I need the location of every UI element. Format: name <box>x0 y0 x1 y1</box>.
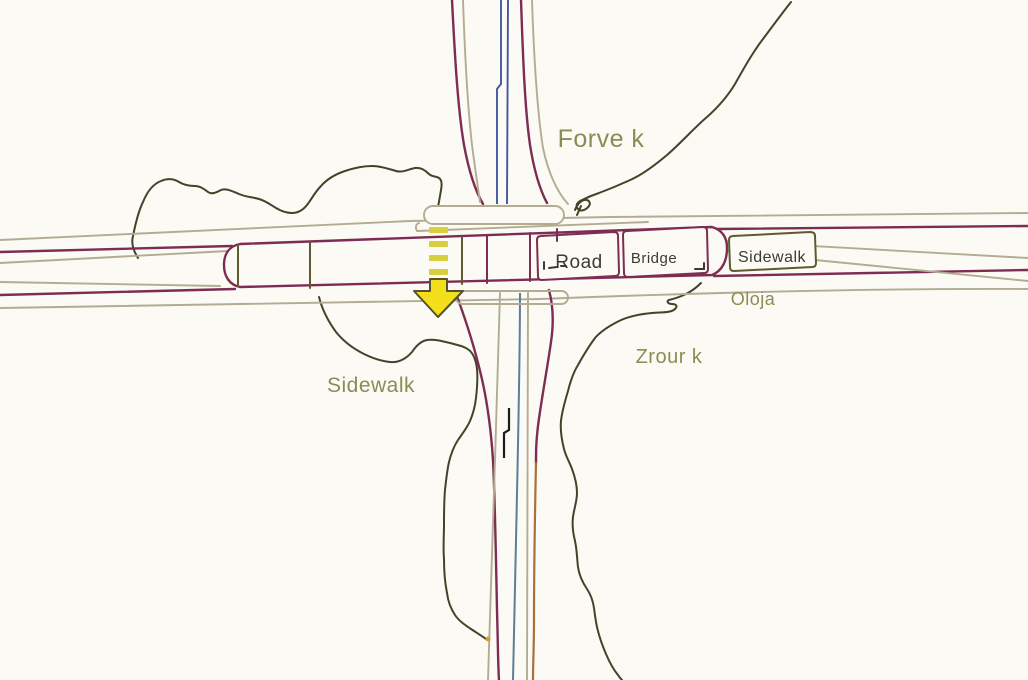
vertical-road <box>452 0 568 680</box>
stream-teal-bottom <box>513 293 520 680</box>
map-canvas: Forve k Road Bridge Sidewalk Oloja Zrour… <box>0 0 1028 680</box>
arrow-dash-1 <box>429 227 448 233</box>
road-edge-lower-left-1 <box>0 282 220 286</box>
arrow-dash-4 <box>429 269 448 275</box>
label-bridge: Bridge <box>631 250 677 267</box>
road-edge-upper-left-2 <box>0 251 228 263</box>
contour-lines <box>132 2 791 680</box>
label-forve-k: Forve k <box>558 125 645 153</box>
survey-dot <box>486 637 491 642</box>
label-sidewalk-right: Sidewalk <box>738 249 807 266</box>
arrow-dash-2 <box>429 241 448 247</box>
vroad-edge-top-right <box>532 0 568 204</box>
label-sidewalk-left: Sidewalk <box>327 374 415 397</box>
vroad-edge-bottom-right <box>527 293 528 680</box>
contour-upper-right <box>575 2 791 215</box>
road-casing-lower-left <box>0 289 235 295</box>
label-road: Road <box>555 252 602 273</box>
vroad-edge-top-left <box>463 0 480 202</box>
road-casing-upper-left <box>0 246 232 252</box>
path-brown-bottom <box>533 462 536 680</box>
gps-trace-jog <box>504 408 509 458</box>
label-zrour-k: Zrour k <box>636 346 703 368</box>
road-casing-upper-right <box>717 226 1028 229</box>
vroad-casing-bottom-right <box>536 290 553 464</box>
contour-lower-left <box>319 297 486 639</box>
stream-blue-1 <box>497 0 501 204</box>
arrow-head <box>414 279 463 317</box>
arrow-dash-3 <box>429 255 448 261</box>
contour-lower-right <box>561 283 701 680</box>
map-drawing: Forve k Road Bridge Sidewalk Oloja Zrour… <box>0 0 1028 680</box>
stream-blue-2 <box>507 0 508 204</box>
label-oloja: Oloja <box>731 289 776 309</box>
road-casing-lower-right <box>714 270 1028 276</box>
north-abutment <box>424 206 564 224</box>
